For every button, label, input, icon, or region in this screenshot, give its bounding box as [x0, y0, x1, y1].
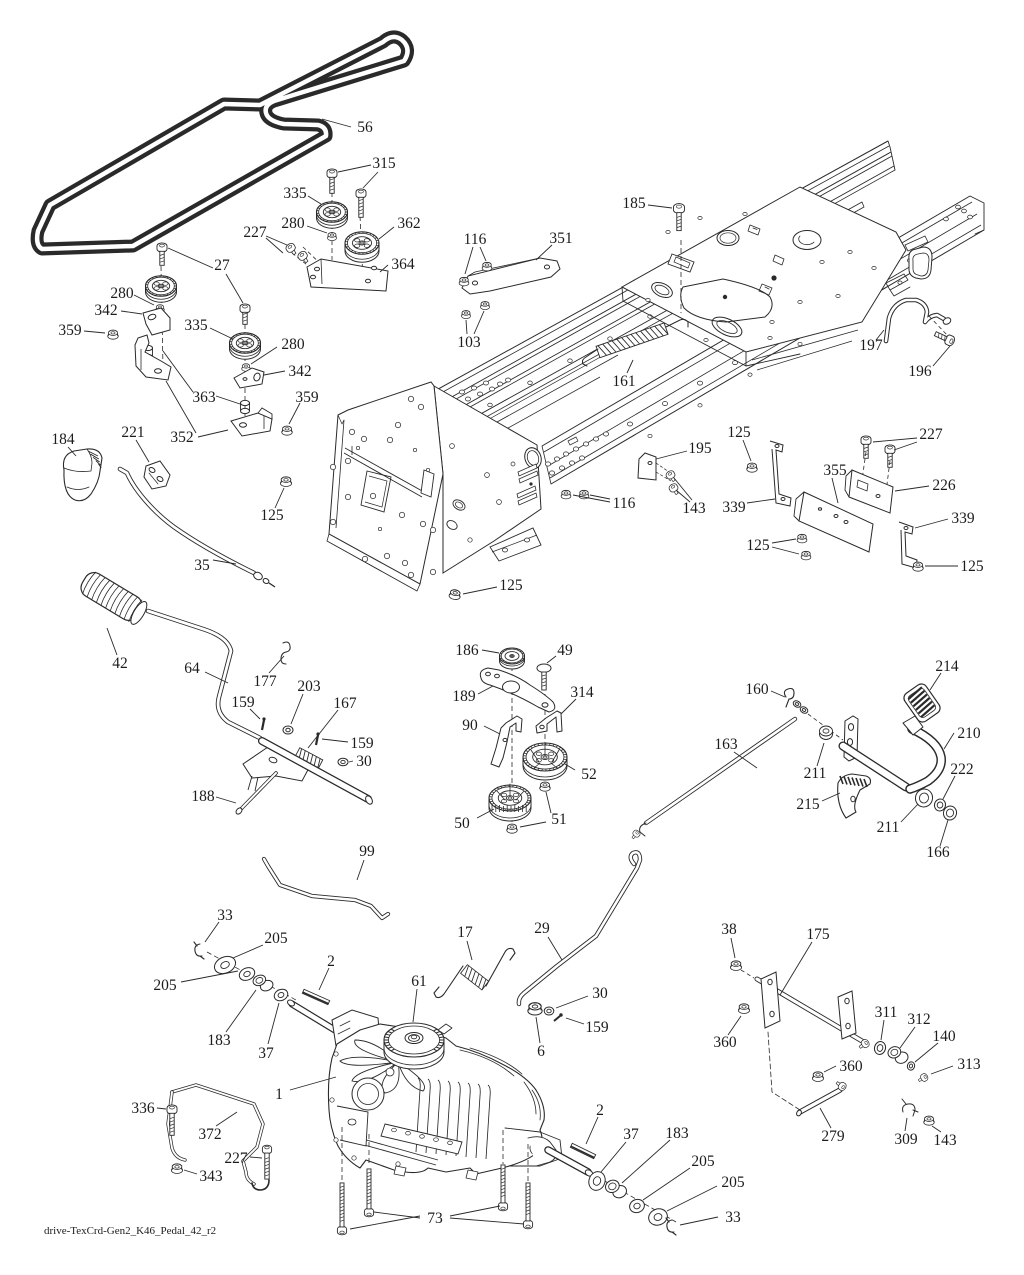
svg-text:339: 339	[951, 510, 975, 527]
svg-text:73: 73	[427, 1210, 443, 1227]
svg-text:222: 222	[950, 761, 973, 778]
svg-text:313: 313	[957, 1056, 981, 1073]
svg-text:210: 210	[957, 725, 981, 742]
svg-text:221: 221	[121, 424, 144, 441]
svg-text:61: 61	[411, 973, 427, 990]
svg-text:37: 37	[258, 1045, 274, 1062]
svg-text:227: 227	[243, 224, 267, 241]
svg-text:314: 314	[570, 684, 594, 701]
svg-text:215: 215	[796, 796, 820, 813]
svg-text:360: 360	[713, 1034, 737, 1051]
svg-text:186: 186	[455, 642, 479, 659]
svg-text:355: 355	[823, 462, 847, 479]
svg-text:364: 364	[391, 256, 415, 273]
svg-text:211: 211	[804, 765, 827, 782]
svg-text:309: 309	[894, 1131, 918, 1148]
svg-text:342: 342	[94, 302, 117, 319]
svg-text:140: 140	[932, 1028, 956, 1045]
svg-text:175: 175	[806, 926, 830, 943]
svg-text:189: 189	[452, 688, 476, 705]
svg-text:339: 339	[722, 499, 746, 516]
svg-text:116: 116	[613, 495, 636, 512]
svg-text:359: 359	[295, 389, 319, 406]
svg-text:159: 159	[585, 1019, 609, 1036]
svg-text:363: 363	[192, 389, 216, 406]
svg-text:335: 335	[184, 317, 208, 334]
svg-text:336: 336	[131, 1100, 155, 1117]
svg-text:167: 167	[333, 695, 357, 712]
svg-text:56: 56	[357, 119, 373, 136]
svg-text:372: 372	[198, 1126, 221, 1143]
svg-text:197: 197	[859, 337, 883, 354]
svg-text:6: 6	[537, 1043, 545, 1060]
svg-text:30: 30	[592, 985, 608, 1002]
svg-text:211: 211	[877, 819, 900, 836]
svg-text:205: 205	[691, 1153, 715, 1170]
svg-text:312: 312	[907, 1011, 930, 1028]
svg-text:38: 38	[721, 921, 737, 938]
svg-text:280: 280	[110, 285, 134, 302]
svg-text:143: 143	[933, 1132, 957, 1149]
svg-text:2: 2	[327, 953, 335, 970]
svg-text:116: 116	[464, 231, 487, 248]
svg-text:351: 351	[549, 230, 572, 247]
svg-text:50: 50	[454, 815, 470, 832]
svg-text:51: 51	[551, 811, 567, 828]
svg-text:49: 49	[557, 642, 573, 659]
svg-text:37: 37	[623, 1126, 639, 1143]
svg-text:125: 125	[960, 558, 984, 575]
svg-text:184: 184	[51, 431, 75, 448]
svg-text:315: 315	[372, 155, 396, 172]
svg-text:177: 177	[253, 673, 277, 690]
svg-text:360: 360	[839, 1058, 863, 1075]
svg-text:227: 227	[919, 426, 943, 443]
svg-text:64: 64	[184, 660, 200, 677]
svg-text:280: 280	[281, 215, 305, 232]
svg-text:226: 226	[932, 477, 956, 494]
svg-text:279: 279	[821, 1128, 845, 1145]
svg-text:2: 2	[596, 1102, 604, 1119]
svg-text:196: 196	[908, 363, 932, 380]
svg-text:183: 183	[665, 1125, 689, 1142]
svg-text:343: 343	[199, 1168, 223, 1185]
svg-text:203: 203	[297, 678, 321, 695]
svg-text:17: 17	[457, 924, 473, 941]
svg-text:drive-TexCrd-Gen2_K46_Pedal_42: drive-TexCrd-Gen2_K46_Pedal_42_r2	[44, 1225, 216, 1237]
svg-text:30: 30	[356, 753, 372, 770]
svg-text:1: 1	[275, 1086, 283, 1103]
svg-text:280: 280	[281, 336, 305, 353]
svg-text:188: 188	[191, 788, 215, 805]
svg-text:159: 159	[350, 735, 374, 752]
svg-text:163: 163	[714, 736, 738, 753]
svg-text:227: 227	[224, 1150, 248, 1167]
svg-text:362: 362	[397, 215, 420, 232]
svg-text:205: 205	[153, 977, 177, 994]
svg-text:205: 205	[721, 1174, 745, 1191]
svg-text:311: 311	[875, 1004, 898, 1021]
svg-text:33: 33	[725, 1209, 741, 1226]
svg-text:35: 35	[194, 557, 210, 574]
svg-text:99: 99	[359, 843, 375, 860]
svg-text:125: 125	[746, 537, 770, 554]
svg-text:185: 185	[622, 195, 646, 212]
svg-text:42: 42	[112, 655, 128, 672]
svg-text:29: 29	[534, 920, 550, 937]
svg-text:166: 166	[926, 844, 950, 861]
svg-text:195: 195	[688, 440, 712, 457]
svg-text:103: 103	[457, 334, 481, 351]
svg-text:342: 342	[288, 363, 311, 380]
svg-text:352: 352	[170, 429, 193, 446]
svg-text:125: 125	[727, 424, 751, 441]
svg-text:183: 183	[207, 1032, 231, 1049]
svg-text:160: 160	[745, 681, 769, 698]
svg-text:335: 335	[283, 185, 307, 202]
svg-text:159: 159	[231, 694, 255, 711]
svg-text:125: 125	[260, 507, 284, 524]
svg-text:90: 90	[462, 717, 478, 734]
svg-text:205: 205	[264, 930, 288, 947]
svg-text:52: 52	[581, 766, 597, 783]
svg-text:27: 27	[214, 257, 230, 274]
svg-text:125: 125	[499, 577, 523, 594]
svg-text:214: 214	[935, 658, 959, 675]
svg-text:161: 161	[612, 373, 635, 390]
svg-text:143: 143	[682, 500, 706, 517]
svg-text:33: 33	[217, 907, 233, 924]
svg-text:359: 359	[58, 322, 82, 339]
